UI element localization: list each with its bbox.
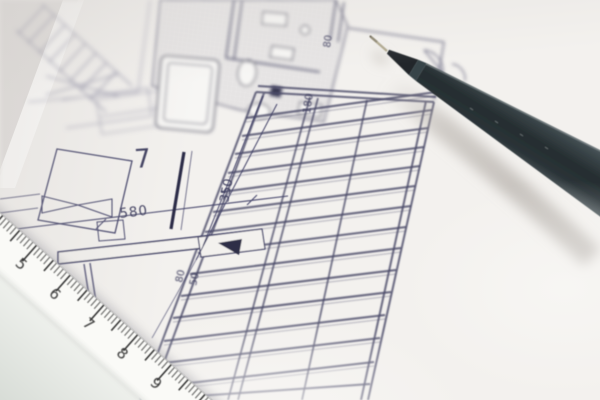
pen-nib xyxy=(371,37,387,51)
deck-boards xyxy=(140,92,436,400)
door-swing-drawing xyxy=(348,28,465,100)
bed-symbol xyxy=(38,149,132,233)
wall-band xyxy=(58,231,250,264)
deck-joists xyxy=(228,97,367,400)
dim-350-label: 350 xyxy=(216,177,235,203)
dim-580-label: 580 xyxy=(119,203,150,222)
ruler-number-5: 5 xyxy=(10,253,32,276)
room-number-label: 7 xyxy=(133,144,152,175)
technical-pen xyxy=(369,35,600,217)
ruler-number-6: 6 xyxy=(44,283,66,306)
pen-grip-ring xyxy=(409,60,427,81)
bathroom-drawing xyxy=(152,0,348,132)
terrace-decking xyxy=(140,86,436,400)
pen-barrel xyxy=(416,63,600,218)
dimension-line-350 xyxy=(196,96,277,260)
plan-labels-blurred: 80 180 80 50 xyxy=(174,34,335,286)
ruler-number-8: 8 xyxy=(111,342,133,365)
dimension-line-580 xyxy=(0,196,288,231)
bathtub xyxy=(156,56,219,132)
pen-cone xyxy=(387,50,418,75)
photo-floor-plan-scene: 7 580 350 80 180 80 50 xyxy=(0,0,600,400)
ruler: 4 5 6 7 8 9 3 xyxy=(0,182,445,400)
dim-80-lower-label: 80 xyxy=(174,269,187,284)
section-marker xyxy=(218,239,242,255)
bathroom-fixtures xyxy=(236,12,322,120)
pen-shadow xyxy=(370,50,592,258)
tiled-floor xyxy=(152,0,348,122)
dim-180-label: 180 xyxy=(301,93,316,115)
dim-80-upper-label: 80 xyxy=(322,34,335,48)
plan-labels: 7 580 350 xyxy=(119,144,236,222)
dim-50-lower-label: 50 xyxy=(188,272,201,287)
ruler-number-7: 7 xyxy=(78,313,100,336)
wall-edge-dark xyxy=(171,152,184,229)
ruler-number-9: 9 xyxy=(145,372,167,395)
